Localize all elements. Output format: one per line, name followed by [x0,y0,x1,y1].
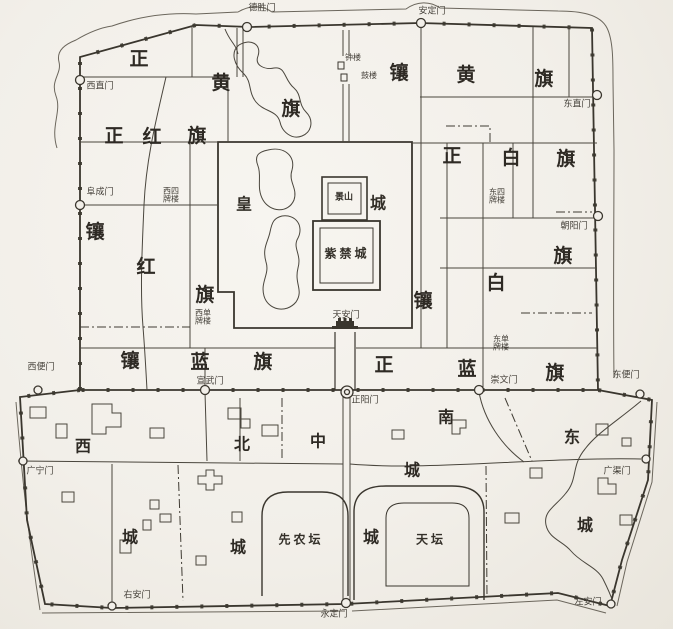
gate-chaoyangmen: 朝阳门 [560,222,587,231]
gate-yongdingmen: 永定门 [320,610,347,619]
banner-xianglan-3: 旗 [253,353,272,373]
district-dong-cheng: 城 [577,518,593,535]
gate-dongbianmen: 东便门 [612,371,639,380]
banner-xianghong-2: 红 [136,258,155,278]
gate-andingmen: 安定门 [418,7,445,16]
banner-xianghuang-3: 旗 [534,70,553,90]
gate-guangningmen: 广宁门 [26,467,53,476]
banner-zhenghuang-2: 黄 [211,74,230,94]
banner-zhenglan-3: 旗 [545,364,564,384]
banner-xianghong-3: 旗 [195,286,214,306]
banner-zhengbai-3: 旗 [556,150,575,170]
district-zhong: 中 [310,434,326,451]
banner-zhenghong-2: 红 [142,128,161,148]
banner-zhenghuang-1: 正 [129,50,148,70]
banner-xianghuang-1: 镶 [389,64,408,84]
gate-xibianmen: 西便门 [27,363,54,372]
banner-xiangbai-3: 旗 [553,247,572,267]
pailou-xisi: 西四 牌楼 [163,188,179,205]
gate-fuchengmen: 阜成门 [86,188,113,197]
banner-xianglan-1: 镶 [120,352,139,372]
banner-zhenglan-2: 蓝 [457,360,476,380]
gate-xizhimen: 西直门 [86,82,113,91]
tower-zhonglou: 钟楼 [345,54,361,62]
banner-xiangbai-1: 镶 [413,292,432,312]
district-zhong-cheng: 城 [363,530,379,547]
pailou-dongdan: 东单 牌楼 [493,336,509,353]
jingshan: 景山 [335,193,353,202]
banner-zhenglan-1: 正 [374,356,393,376]
gate-dongzhimen: 东直门 [563,100,590,109]
beijing-banner-map: 德胜门安定门西直门阜成门东直门朝阳门宣武门正阳门崇文门西便门东便门广宁门广渠门右… [0,0,673,629]
pailou-dongsi: 东四 牌楼 [489,189,505,206]
xiannongtan-label: 先农坛 [278,534,323,547]
banner-zhengbai-1: 正 [442,147,461,167]
gate-guangqumen: 广渠门 [603,467,630,476]
labels-layer: 德胜门安定门西直门阜成门东直门朝阳门宣武门正阳门崇文门西便门东便门广宁门广渠门右… [0,0,673,629]
gate-zhengyangmen: 正阳门 [351,396,378,405]
tiananmen-label: 天安门 [332,311,359,320]
tiantan-label: 天坛 [416,534,446,547]
banner-xianglan-2: 蓝 [190,353,209,373]
gate-zuoanmen: 左安门 [574,598,601,607]
district-nan-cheng: 城 [404,463,420,480]
imperial-city-huang: 皇 [236,197,252,214]
imperial-city-cheng: 城 [370,196,386,213]
banner-xianghong-1: 镶 [85,223,104,243]
gate-youanmen: 右安门 [123,591,150,600]
banner-zhenghuang-3: 旗 [281,100,300,120]
district-bei: 北 [234,437,250,454]
tower-gulou: 鼓楼 [361,72,377,80]
banner-xiangbai-2: 白 [486,274,505,294]
banner-zhenghong-1: 正 [104,127,123,147]
district-dong: 东 [564,430,580,447]
district-nan: 南 [438,410,454,427]
district-xi-cheng: 城 [122,530,138,547]
banner-xianghuang-2: 黄 [456,66,475,86]
pailou-xidan: 西单 牌楼 [195,310,211,327]
gate-chongwenmen: 崇文门 [490,376,517,385]
forbidden-city-label: 紫禁城 [324,248,369,261]
banner-zhengbai-2: 白 [501,149,520,169]
banner-zhenghong-3: 旗 [187,127,206,147]
gate-xuanwumen: 宣武门 [196,377,223,386]
gate-deshengmen: 德胜门 [248,4,275,13]
district-xi: 西 [75,439,91,456]
district-bei-cheng: 城 [230,540,246,557]
